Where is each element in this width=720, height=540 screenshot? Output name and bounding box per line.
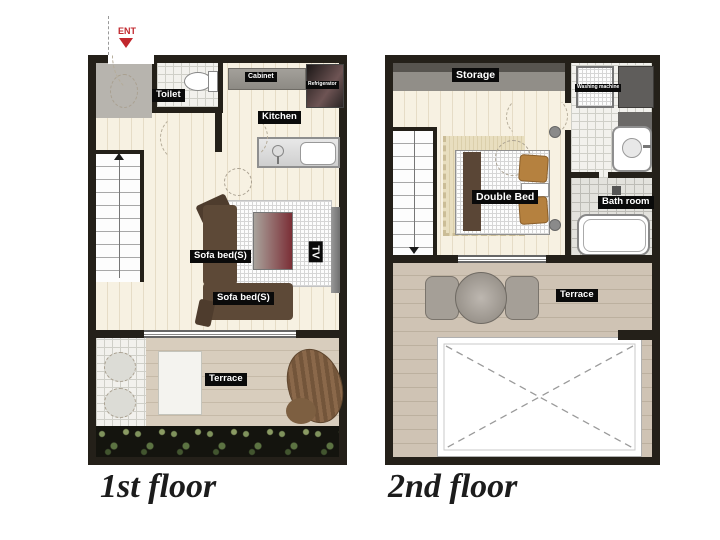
void-cross-icon: [438, 338, 641, 456]
washbasin-faucet-icon: [643, 145, 651, 148]
wall-segment: [571, 172, 599, 178]
storage-label: Storage: [452, 68, 499, 82]
terrace-2f-label: Terrace: [556, 289, 598, 302]
hall-door-arc-1: [160, 114, 208, 162]
lounge-stool: [286, 398, 316, 424]
faucet-stem: [277, 156, 279, 164]
wall-segment: [96, 330, 144, 338]
living-window: [144, 330, 296, 338]
bathtub-inner: [583, 219, 646, 252]
floor-plan-canvas: ENT Toilet Cabinet Refrigerator Kitchen …: [0, 0, 720, 540]
interior-wall-stub: [565, 130, 571, 263]
terrace-void-opening: [437, 337, 642, 457]
utility-shelf: [618, 66, 654, 108]
stairs-1f-centerline: [119, 156, 120, 278]
tv-label: TV: [309, 241, 323, 262]
wall-segment: [296, 330, 339, 338]
terrace-table: [158, 351, 202, 415]
wall-segment: [608, 172, 652, 178]
toilet-label: Toilet: [152, 89, 185, 102]
terrace-round-table: [455, 272, 507, 324]
washbasin-bowl: [622, 138, 642, 158]
kitchen-label: Kitchen: [258, 111, 301, 124]
bedroom-door-arc: [506, 96, 548, 138]
stairs-1f: [96, 150, 144, 282]
washing-machine-label: Washing machine: [575, 84, 621, 92]
terrace-chair: [425, 276, 459, 320]
sofa-bed-vertical: [203, 205, 237, 285]
floor2-caption: 2nd floor: [388, 468, 517, 506]
cabinet-label: Cabinet: [245, 72, 277, 82]
bed-pillow: [518, 154, 549, 183]
interior-wall-stub: [215, 110, 222, 152]
ent-arrow-icon: [119, 38, 133, 48]
bedroom-window: [458, 255, 546, 263]
toilet-tank: [208, 71, 218, 92]
double-bed-label: Double Bed: [472, 190, 538, 204]
stairs-up-arrow-icon: [114, 153, 124, 160]
floor-plant-sketch: [224, 168, 252, 196]
wall-lamp-icon: [549, 126, 561, 138]
floor1-caption: 1st floor: [100, 468, 216, 506]
terrace-chair-sketch: [104, 352, 136, 382]
wall-lamp-icon: [549, 219, 561, 231]
entrance-plant-sketch: [110, 74, 138, 108]
sofa-bed-label-b: Sofa bed(S): [213, 292, 274, 305]
kitchen-sink: [300, 142, 336, 165]
wall-segment: [546, 255, 652, 263]
interior-wall-stub: [565, 63, 571, 103]
entrance-label: ENT: [118, 26, 136, 36]
drain-icon: [612, 186, 621, 195]
terrace-1f-label: Terrace: [205, 373, 247, 386]
terrace-chair-sketch: [104, 388, 136, 418]
stairs-down-arrow-icon: [409, 247, 419, 254]
sofa-bed-label-a: Sofa bed(S): [190, 250, 251, 263]
stairs-2f: [393, 127, 437, 260]
wall-notch: [618, 330, 652, 340]
terrace-chair: [505, 276, 539, 320]
garden-plants-strip: [96, 426, 339, 457]
tv-unit: [331, 207, 340, 293]
refrigerator-label: Refrigerator: [306, 81, 339, 89]
coffee-table: [253, 212, 293, 270]
stairs-2f-centerline: [414, 131, 415, 253]
wall-segment: [393, 255, 458, 263]
bath-room-label: Bath room: [598, 196, 654, 209]
